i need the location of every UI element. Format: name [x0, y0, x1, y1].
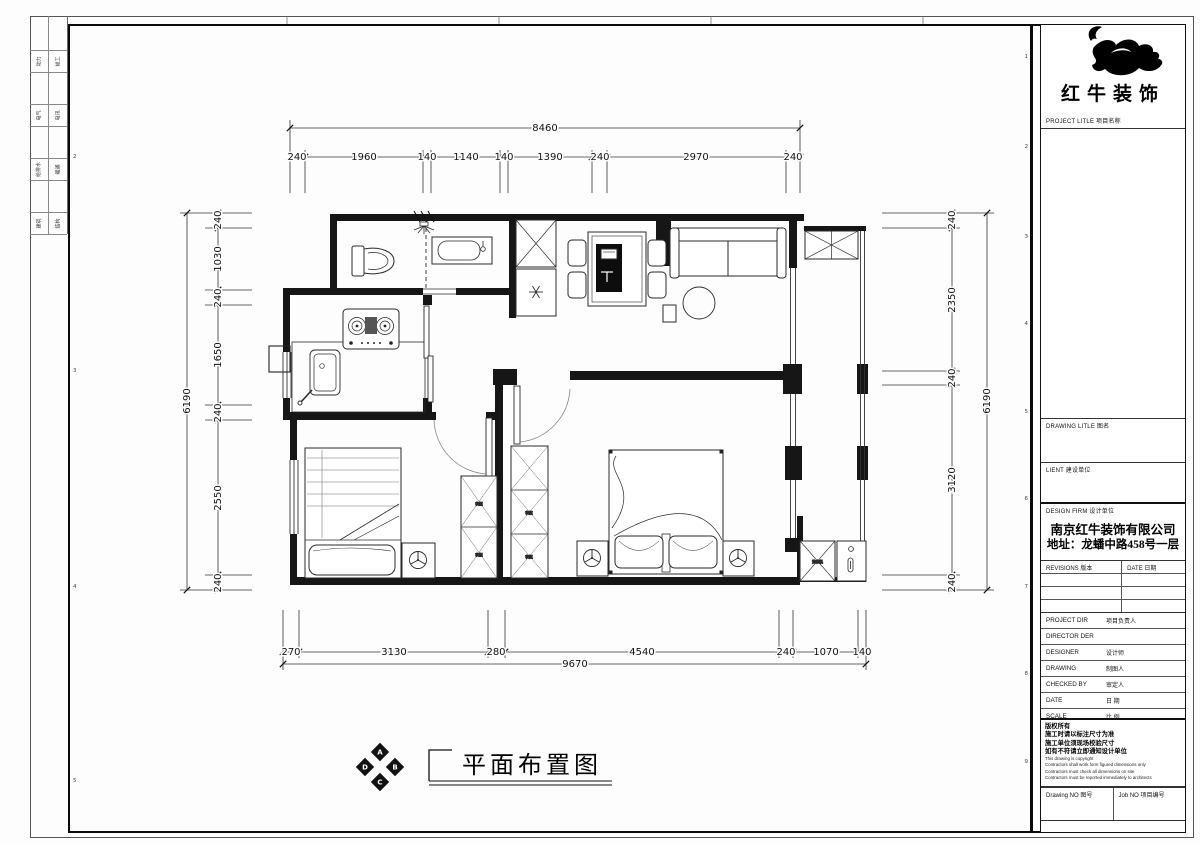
frame-number: 2 — [1025, 144, 1029, 150]
sign-role-en: DATE — [1041, 697, 1106, 704]
drawing-sheet: 动力 竣工 电气 电讯 给排水 暖通 建筑 结构 — [0, 0, 1200, 844]
dim-value: 240 — [947, 210, 958, 229]
dim-value: 240 — [213, 288, 224, 307]
dim-value: 1650 — [213, 342, 224, 367]
sofa — [670, 228, 786, 278]
coffee-table — [683, 287, 715, 319]
dim-value: 280 — [486, 647, 505, 658]
dining-chair — [648, 240, 666, 266]
sign-role-en: PROJECT DIR — [1041, 617, 1106, 624]
client-label: LIENT 建设单位 — [1041, 463, 1185, 474]
dim-value: 240 — [213, 403, 224, 422]
double-bed — [609, 450, 723, 574]
dimension-lines — [180, 120, 994, 670]
title-bracket — [429, 750, 452, 781]
dim-value: 240 — [947, 368, 958, 387]
drawing-no-label: Drawing NO 图号 — [1041, 788, 1113, 820]
dim-value: 2970 — [683, 152, 708, 163]
dim-value: 2550 — [213, 485, 224, 510]
brand-name: 红牛装饰 — [1061, 79, 1165, 106]
dim-value: 240 — [776, 647, 795, 658]
dining-area — [568, 232, 666, 306]
sign-role-cn: 制图人 — [1106, 664, 1124, 673]
revisions-table: REVISIONS 版本 DATE 日期 — [1041, 561, 1185, 613]
revision-row — [1041, 600, 1185, 612]
drawing-caption: A B C D 平面布置图 — [356, 743, 612, 791]
frame-number: 4 — [73, 584, 77, 590]
entry-closet — [516, 220, 556, 316]
dim-value: 240 — [947, 573, 958, 592]
nightstand — [402, 543, 435, 578]
sign-role-cn: 日 期 — [1106, 696, 1120, 705]
job-no-label: Job NO 项目编号 — [1113, 788, 1186, 820]
compass-icon: A B C D — [356, 743, 404, 791]
kitchen-sink — [298, 350, 340, 405]
titleblock-tail — [1041, 820, 1185, 831]
frame-number: 7 — [1025, 584, 1029, 590]
sign-role-cn: 审定人 — [1106, 680, 1124, 689]
dining-chair — [648, 272, 666, 298]
frame-number: 3 — [73, 368, 77, 374]
dim-value: 1960 — [351, 152, 376, 163]
revisions-date-label: DATE 日期 — [1121, 561, 1185, 573]
revisions-label: REVISIONS 版本 — [1041, 561, 1121, 573]
drawing-title-label: DRAWING LITLE 图名 — [1041, 419, 1185, 430]
revision-row — [1041, 587, 1185, 600]
sign-role-cn: 项目负责人 — [1106, 616, 1136, 625]
dim-value: 1030 — [213, 246, 224, 271]
compass-letter: A — [377, 749, 383, 757]
company-address: 地址：龙蟠中路458号一层 — [1041, 538, 1185, 553]
dim-value: 140 — [494, 152, 513, 163]
frame-number: 8 — [1025, 671, 1029, 677]
copyright-line: Contractors must be reported immediately… — [1045, 775, 1181, 781]
wardrobe: 衣柜 衣柜 — [461, 476, 497, 578]
frame-number: 3 — [1025, 234, 1029, 240]
dim-value: 8460 — [532, 123, 557, 134]
gas-stove — [343, 309, 399, 349]
dining-chair — [568, 240, 586, 266]
dim-value: 240 — [213, 573, 224, 592]
dim-value: 1070 — [813, 647, 838, 658]
side-table — [663, 305, 676, 322]
bathroom-sink — [432, 237, 492, 264]
dim-value: 3120 — [947, 467, 958, 492]
frame-ticks — [287, 16, 923, 24]
laundry-sink — [837, 541, 866, 581]
frame-number: 5 — [1025, 409, 1029, 415]
bathroom — [352, 221, 492, 295]
sign-role-en: DRAWING — [1041, 665, 1106, 672]
dim-value: 1390 — [537, 152, 562, 163]
shower-head-icon — [414, 222, 434, 234]
dim-value: 3130 — [381, 647, 406, 658]
sign-row: PROJECT DIR 项目负责人 — [1041, 613, 1185, 629]
dimension-ticks — [184, 125, 990, 667]
wardrobe-label: 衣柜 — [475, 552, 483, 557]
design-firm-label: DESIGN FIRM 设计单位 — [1041, 504, 1185, 515]
revision-row — [1041, 574, 1185, 587]
logo-area: 红牛装饰 — [1041, 25, 1185, 114]
living-room — [663, 228, 858, 322]
dim-value: 1140 — [453, 152, 478, 163]
toilet — [352, 246, 394, 276]
sign-row: DRAWING 制图人 — [1041, 661, 1185, 677]
number-row: Drawing NO 图号 Job NO 项目编号 — [1041, 787, 1185, 820]
laundry-balcony: 洗衣机 — [800, 541, 866, 581]
master-bedroom: 衣柜 衣柜 — [511, 386, 754, 578]
project-title-label: PROJECT LITLE 项目名称 — [1041, 114, 1185, 125]
copyright-note: 版权所有 施工时请以标注尺寸为准 施工单位须现场校验尺寸 如有不符请立即通知设计… — [1041, 718, 1185, 787]
dining-chair — [568, 272, 586, 298]
dim-value: 6190 — [182, 388, 193, 413]
company-name: 南京红牛装饰有限公司 — [1041, 522, 1185, 538]
compass-letter: C — [377, 779, 382, 787]
wardrobe-label: 衣柜 — [525, 554, 533, 559]
title-block: 红牛装饰 PROJECT LITLE 项目名称 DRAWING LITLE 图名… — [1040, 24, 1186, 833]
sign-role-en: DIRECTOR DER — [1041, 633, 1106, 640]
project-title-field — [1041, 129, 1185, 419]
sign-row: DESIGNER 设计师 — [1041, 645, 1185, 661]
frame-number: 2 — [73, 154, 77, 160]
redbull-logo-icon — [1061, 25, 1165, 77]
frame-number: 5 — [73, 778, 77, 784]
kitchen — [292, 306, 433, 412]
dim-value: 240 — [590, 152, 609, 163]
dim-value: 240 — [287, 152, 306, 163]
dim-value: 140 — [852, 647, 871, 658]
washer-label: 洗衣机 — [812, 559, 823, 564]
bedroom-door — [434, 418, 492, 476]
sign-role-en: DESIGNER — [1041, 649, 1106, 656]
dimension-values: 8460 240 1960 140 1140 140 1390 240 2970… — [182, 123, 993, 670]
dim-value: 140 — [417, 152, 436, 163]
small-bedroom: 衣柜 衣柜 — [305, 418, 497, 578]
dim-value: 240 — [213, 210, 224, 229]
decor-cabinet — [596, 244, 622, 292]
compass-letter: B — [392, 764, 397, 772]
sign-row: CHECKED BY 审定人 — [1041, 677, 1185, 693]
dim-value: 6190 — [982, 388, 993, 413]
sign-row: DATE 日 期 — [1041, 693, 1185, 709]
frame-number: 1 — [1025, 54, 1029, 60]
wardrobe-label: 衣柜 — [525, 510, 533, 515]
single-bed — [305, 448, 401, 578]
compass-letter: D — [362, 764, 368, 772]
pillow — [615, 536, 663, 568]
dim-value: 9670 — [562, 659, 587, 670]
nightstand — [577, 541, 608, 576]
door-threshold — [423, 288, 456, 295]
page-title: 平面布置图 — [462, 751, 602, 779]
floor-plan-canvas: 衣柜 衣柜 衣柜 衣柜 — [0, 0, 1200, 844]
washing-machine: 洗衣机 — [800, 541, 835, 581]
nightstand — [723, 541, 754, 576]
sign-role-cn: 设计师 — [1106, 648, 1124, 657]
master-door — [514, 386, 570, 444]
frame-number: 9 — [1025, 759, 1029, 765]
copyright-line: 施工时请以标注尺寸为准 — [1045, 731, 1181, 739]
signature-rows: PROJECT DIR 项目负责人 DIRECTOR DER DESIGNER … — [1041, 613, 1185, 718]
wardrobe-label: 衣柜 — [475, 501, 483, 506]
balcony-cabinet — [805, 231, 858, 259]
sign-role-en: CHECKED BY — [1041, 681, 1106, 688]
frame-number: 6 — [1025, 496, 1029, 502]
dim-value: 270 — [281, 647, 300, 658]
dim-value: 240 — [783, 152, 802, 163]
copyright-line: 如有不符请立即通知设计单位 — [1045, 748, 1181, 756]
frame-number: 4 — [1025, 321, 1029, 327]
master-wardrobe: 衣柜 衣柜 — [511, 446, 548, 578]
pillow — [669, 536, 717, 568]
dim-value: 4540 — [629, 647, 654, 658]
dim-value: 2350 — [947, 287, 958, 312]
copyright-line: 施工单位须现场校验尺寸 — [1045, 740, 1181, 748]
sign-row: DIRECTOR DER — [1041, 629, 1185, 645]
